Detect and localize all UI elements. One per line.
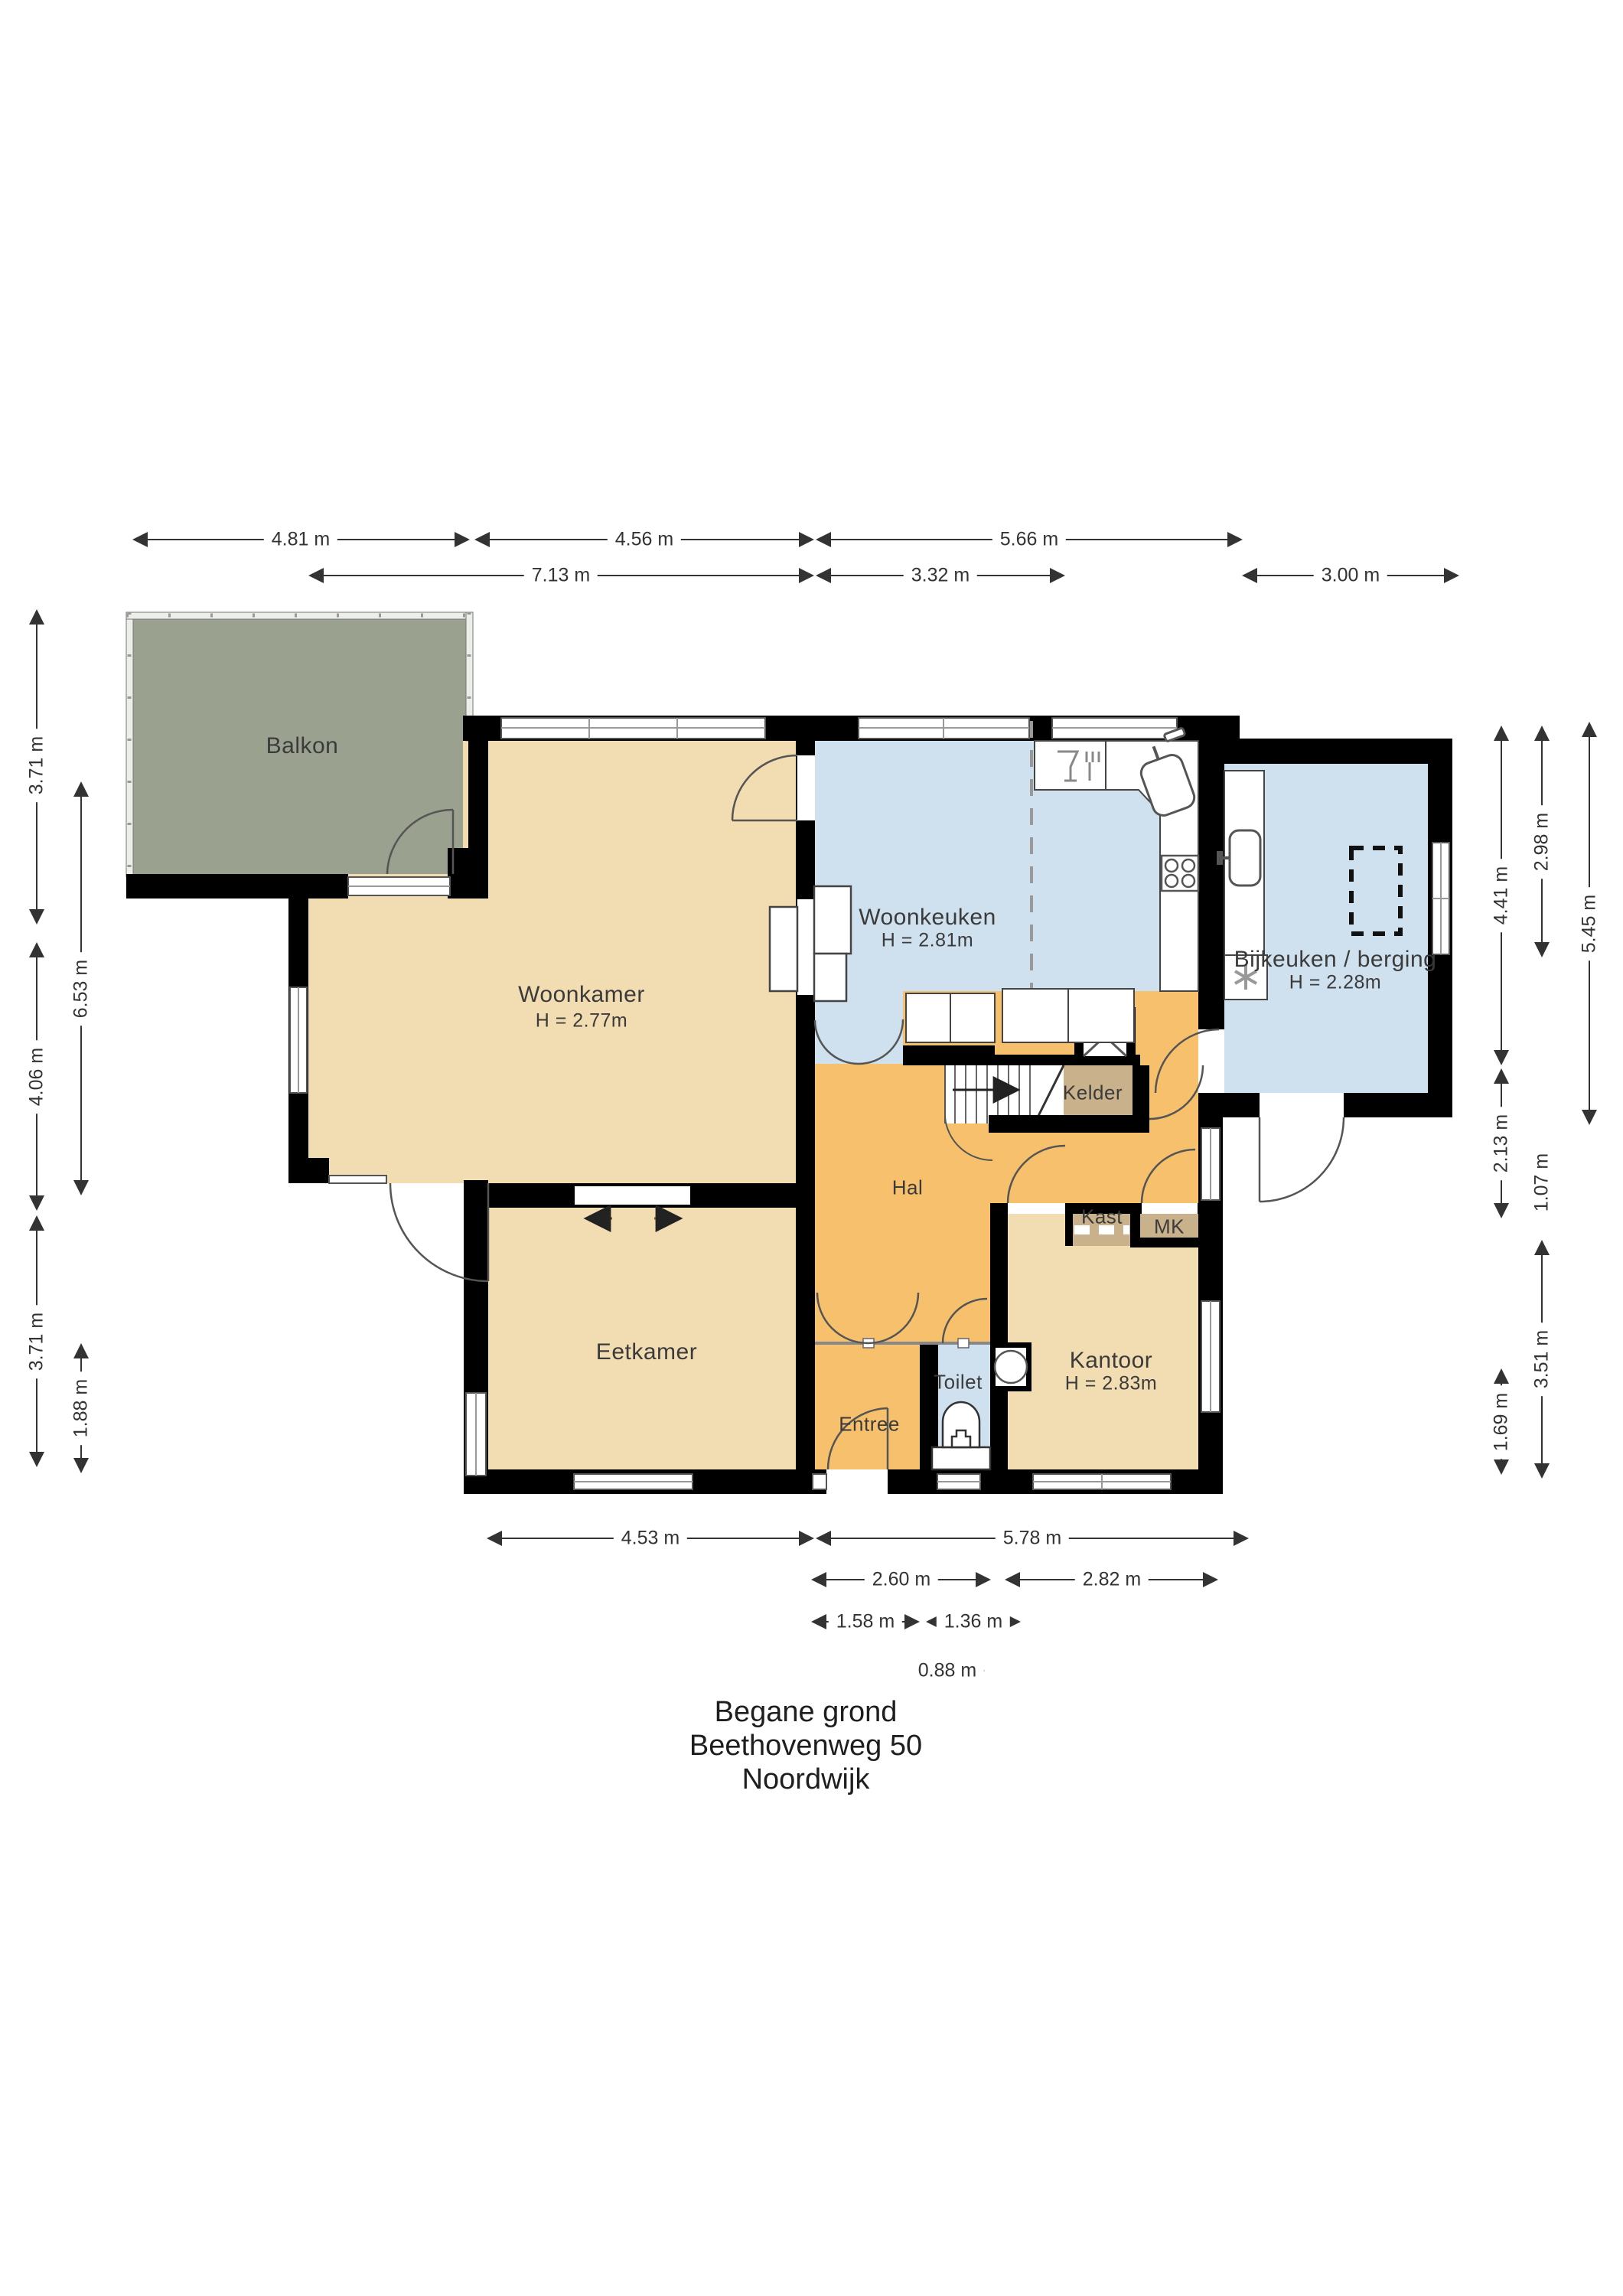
- room-eetkamer: [464, 1183, 815, 1494]
- label-bijkeuken-height: H = 2.28m: [1289, 972, 1382, 994]
- plan-title-city: Noordwijk: [689, 1763, 922, 1796]
- dim-left-653: 6.53 m: [70, 952, 92, 1026]
- label-woonkeuken-height: H = 2.81m: [882, 930, 974, 952]
- dim-bottom-282: 2.82 m: [1075, 1569, 1149, 1590]
- label-toilet: Toilet: [934, 1371, 983, 1394]
- label-kantoor: Kantoor: [1070, 1348, 1153, 1374]
- label-kast: Kast: [1081, 1205, 1123, 1229]
- dim-left-371a: 3.71 m: [26, 729, 47, 802]
- dim-top-481: 4.81 m: [264, 529, 337, 550]
- dim-left-188: 1.88 m: [70, 1371, 92, 1445]
- label-entree: Entree: [839, 1413, 900, 1437]
- dim-bottom-453: 4.53 m: [614, 1528, 687, 1549]
- label-kantoor-height: H = 2.83m: [1065, 1373, 1158, 1395]
- label-balkon: Balkon: [266, 733, 339, 759]
- plan-title-floor: Begane grond: [689, 1695, 922, 1729]
- dim-right-169: 1.69 m: [1491, 1385, 1512, 1459]
- label-mk: MK: [1154, 1215, 1185, 1239]
- dim-left-371b: 3.71 m: [26, 1305, 47, 1378]
- dim-bottom-136: 1.36 m: [937, 1611, 1010, 1632]
- dim-top-566: 5.66 m: [992, 529, 1066, 550]
- plan-title-street: Beethovenweg 50: [689, 1729, 922, 1763]
- dim-right-351: 3.51 m: [1531, 1322, 1553, 1396]
- dim-top-332: 3.32 m: [904, 565, 977, 586]
- dim-right-298: 2.98 m: [1531, 805, 1553, 879]
- dim-bottom-578: 5.78 m: [996, 1528, 1069, 1549]
- label-woonkeuken: Woonkeuken: [859, 905, 996, 931]
- label-eetkamer: Eetkamer: [596, 1339, 697, 1365]
- dim-right-107: 1.07 m: [1531, 1146, 1553, 1219]
- label-woonkamer-height: H = 2.77m: [536, 1010, 628, 1032]
- label-kelder: Kelder: [1063, 1081, 1123, 1105]
- utility-counter: [1217, 771, 1264, 955]
- dim-right-441: 4.41 m: [1491, 859, 1512, 932]
- label-woonkamer: Woonkamer: [518, 982, 645, 1008]
- plan-title: Begane grond Beethovenweg 50 Noordwijk: [689, 1695, 922, 1796]
- dim-bottom-158: 1.58 m: [829, 1611, 902, 1632]
- stove-icon: [1162, 856, 1198, 891]
- dim-right-545: 5.45 m: [1579, 887, 1600, 960]
- backdoor: [1260, 1117, 1344, 1202]
- floor-plan-page: 4.81 m 4.56 m 5.66 m 7.13 m 3.32 m 3.00 …: [0, 0, 1623, 2296]
- dim-top-713: 7.13 m: [524, 565, 598, 586]
- basin-icon: [990, 1342, 1031, 1391]
- floor-plan-drawing: [0, 0, 1623, 2296]
- dim-top-456: 4.56 m: [608, 529, 681, 550]
- dim-top-300: 3.00 m: [1314, 565, 1387, 586]
- utility-sink-icon: [1230, 830, 1260, 885]
- label-bijkeuken: Bijkeuken / berging: [1234, 947, 1437, 973]
- label-hal: Hal: [892, 1176, 924, 1200]
- dim-right-213: 2.13 m: [1491, 1107, 1512, 1180]
- dim-left-406: 4.06 m: [26, 1040, 47, 1114]
- dim-bottom-088: 0.88 m: [911, 1660, 984, 1681]
- dim-bottom-260: 2.60 m: [865, 1569, 938, 1590]
